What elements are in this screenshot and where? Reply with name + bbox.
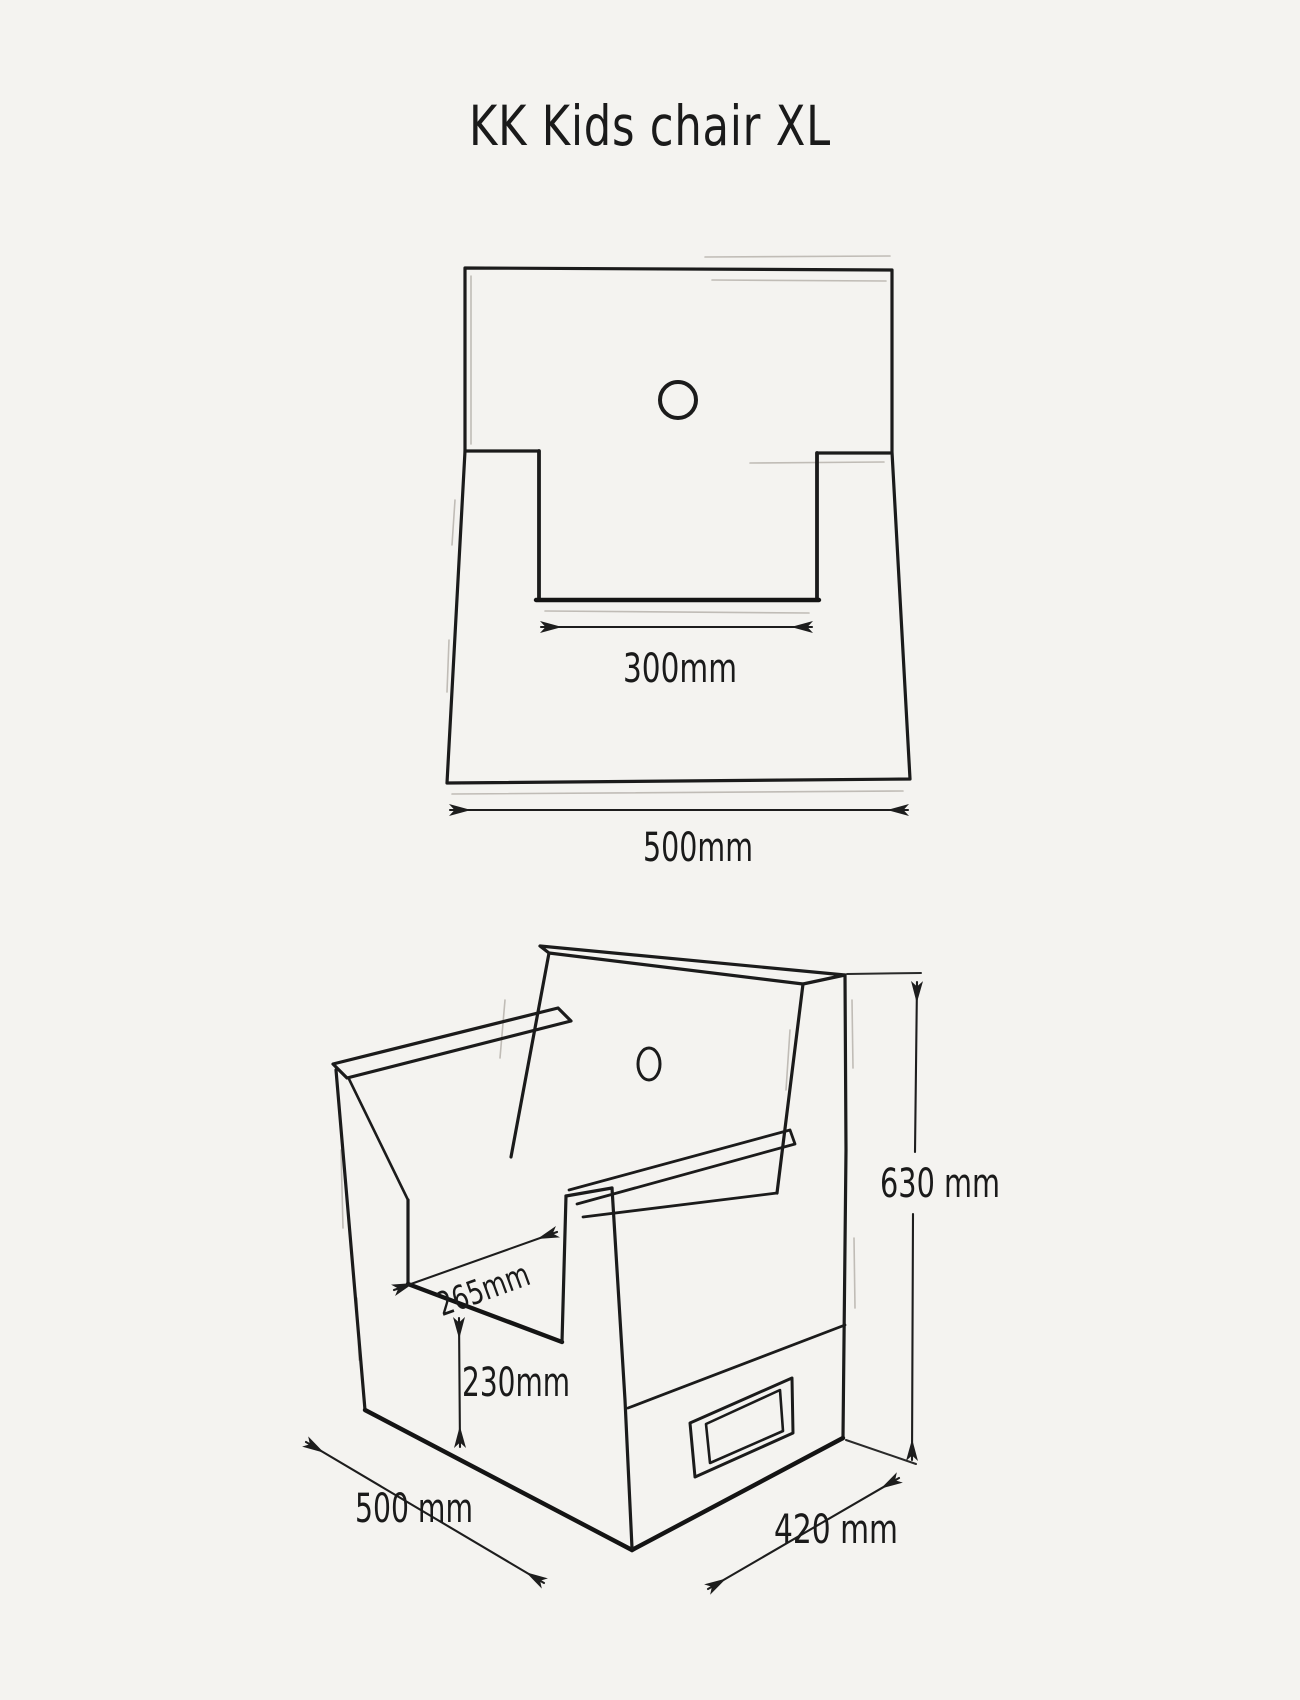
ext-line-top <box>847 973 921 974</box>
ext-line-bottom <box>846 1440 916 1464</box>
scan-ghost-line <box>447 640 449 692</box>
right-face-seam <box>628 1325 845 1408</box>
front-view: 300mm 500mm <box>447 256 910 871</box>
front-hand-hole <box>660 382 696 418</box>
scan-ghost-line <box>500 1000 505 1058</box>
dim-label-300mm: 300mm <box>623 646 737 692</box>
backrest-left-edge <box>511 953 549 1157</box>
left-armrest-inner-edge <box>349 1079 408 1200</box>
front-right-edge <box>612 1188 632 1548</box>
scan-ghost-line <box>452 500 455 545</box>
scan-ghost-line <box>852 1000 853 1068</box>
dim-notch-width: 300mm <box>541 627 812 692</box>
scan-ghost-line <box>705 256 890 257</box>
dim-overall-height: 630 mm <box>846 973 1000 1464</box>
right-armrest-top <box>569 1130 795 1204</box>
scan-ghost-line <box>545 611 809 613</box>
drawing-sheet: KK Kids chair XL 300mm 500mm <box>0 0 1300 1700</box>
backrest-right-edge <box>777 984 803 1193</box>
front-outline <box>447 268 910 783</box>
dim-label-230mm: 230mm <box>462 1360 570 1406</box>
dim-label-420mm: 420 mm <box>774 1507 898 1553</box>
dim-seat-depth: 265mm <box>394 1232 557 1324</box>
dim-overall-width-front: 500mm <box>450 810 908 871</box>
front-notch-sides <box>539 451 817 600</box>
dim-line-630mm-lower <box>912 1214 913 1460</box>
chair-rear-right-edge <box>843 975 846 1437</box>
handle-slot-inner <box>706 1390 783 1463</box>
backrest-hand-hole <box>638 1048 660 1080</box>
notch-right-edge <box>562 1196 566 1342</box>
technical-drawing: KK Kids chair XL 300mm 500mm <box>0 0 1300 1700</box>
backrest-top-edge <box>540 946 845 984</box>
isometric-view: 630 mm 265mm 230mm 500 mm 420 mm <box>306 946 1000 1589</box>
dim-line-630mm-upper <box>915 982 917 1152</box>
dim-label-500mm-front: 500mm <box>643 825 753 871</box>
dim-label-500mm-iso: 500 mm <box>355 1486 473 1532</box>
scan-ghost-line <box>854 1238 855 1308</box>
front-left-edge <box>336 1070 365 1410</box>
dim-label-630mm: 630 mm <box>880 1161 1000 1207</box>
dim-line-230mm <box>459 1318 460 1447</box>
scan-ghost-line <box>712 280 886 281</box>
page-title: KK Kids chair XL <box>469 94 831 158</box>
scan-ghost-line <box>452 791 903 794</box>
dim-overall-width-iso: 500 mm <box>306 1442 544 1583</box>
